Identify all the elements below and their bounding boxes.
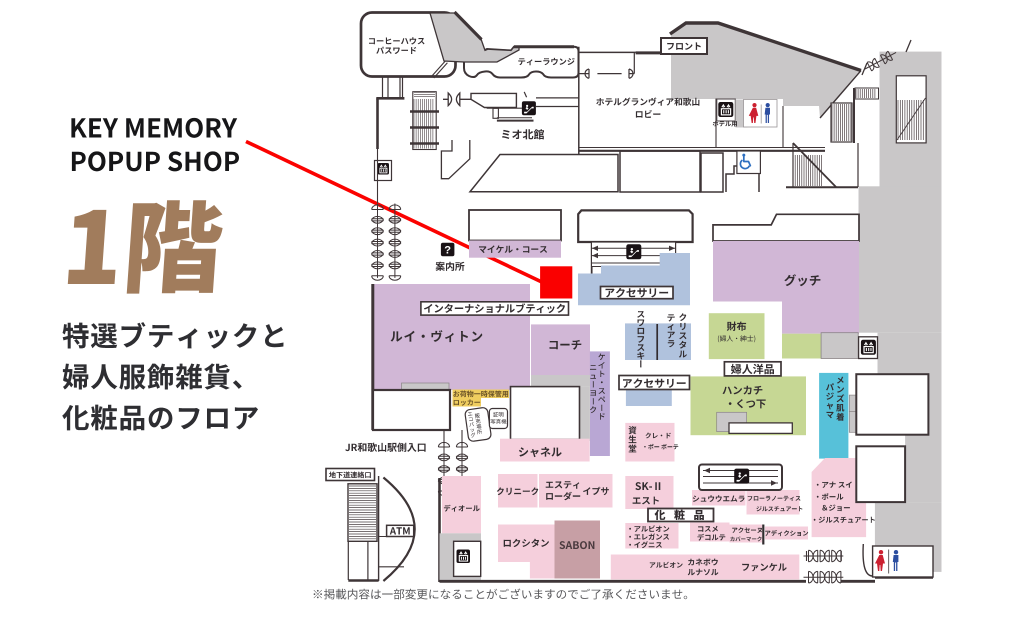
svg-text:?: ?	[444, 244, 451, 256]
